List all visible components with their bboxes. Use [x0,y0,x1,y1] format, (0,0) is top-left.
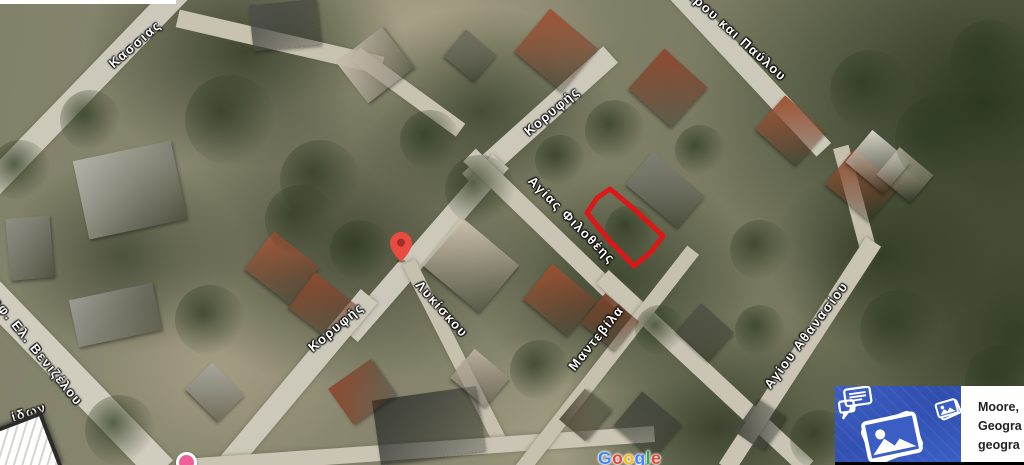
street-label-kassias: Κασσιας [106,17,164,71]
photos-panel[interactable] [835,386,961,462]
street-label-koryfis-north: Κορυφής [521,83,583,138]
attribution-line: Geogra [978,417,1024,436]
google-logo-letter: G [598,448,612,465]
photos-widget[interactable]: Moore,Geogrageogra [835,386,1024,465]
street-label-agias-filotheis: Αγίας Φιλοθέης [525,173,619,267]
attribution-line: Moore, [978,398,1024,417]
google-logo-letter: o [612,448,623,465]
street-label-mantevila: Μαντεβίλα [565,303,626,374]
google-logo-letter: e [651,448,661,465]
google-logo-letter: o [623,448,634,465]
attribution-line: geogra [978,436,1024,455]
top-edge-strip [0,0,176,4]
photo-attribution: Moore,Geogrageogra [961,386,1024,462]
location-marker-icon[interactable] [390,232,412,263]
photo-stack-small-icon [933,396,961,422]
street-label-lykiskou: Λυκίσκου [413,278,472,341]
google-logo[interactable]: Google [598,448,661,465]
street-label-leof-el-venizelou: Λεωφ. Ελ. Βενιζέλου [0,277,86,408]
street-label-koryfis-south: Κορυφής [305,299,367,354]
map-viewport[interactable]: ΚασσιαςΚορυφήςΠέτρου και ΠαύλουΑγίας Φιλ… [0,0,1024,465]
street-label-petrou-kai-pavlou: Πέτρου και Παύλου [672,0,790,84]
google-logo-letter: g [635,448,646,465]
street-label-agiou-athanasiou: Αγίου Αθανασίου [761,279,851,392]
photo-stack-icon [857,408,927,462]
